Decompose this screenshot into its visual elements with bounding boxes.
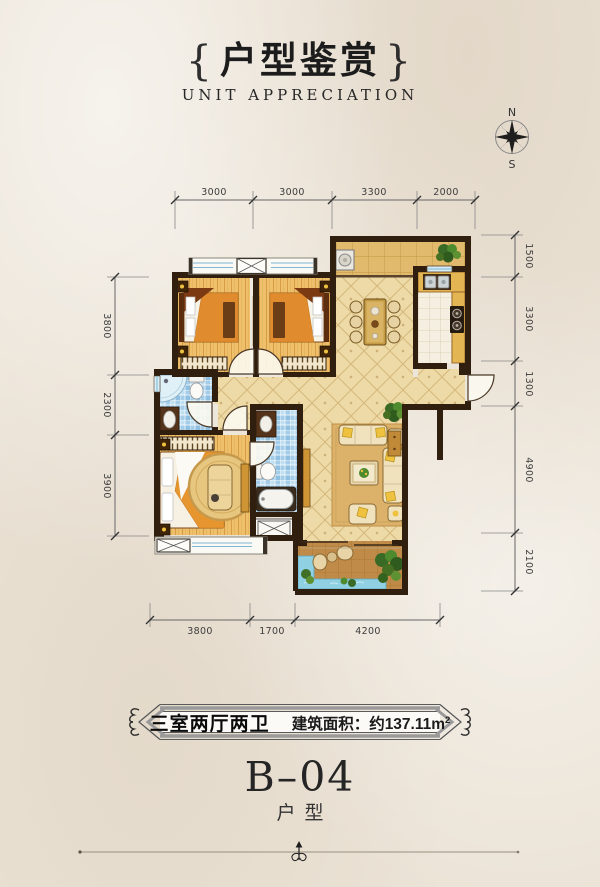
dim-label: 1500 [523, 243, 534, 268]
compass-north-label: N [508, 106, 516, 119]
dim-label: 3300 [523, 306, 534, 331]
dim-label: 2100 [523, 549, 534, 574]
dimension-left: 3800 2300 3900 [101, 273, 149, 540]
dim-label: 4200 [355, 626, 380, 637]
compass-south-label: S [509, 158, 516, 171]
wardrobe-icon [181, 357, 227, 370]
dim-label: 2300 [101, 392, 112, 417]
bay-window [155, 537, 267, 554]
dim-label: 4900 [523, 457, 534, 482]
toilet-icon [189, 375, 204, 399]
stove-icon [450, 306, 464, 333]
floor-plan [154, 236, 494, 595]
compass: N S [495, 106, 529, 171]
rooms-label: 三室两厅两卫 [150, 709, 270, 736]
kitchen-window [427, 266, 452, 272]
dimension-right: 1500 3300 1300 4900 2100 [481, 231, 534, 595]
dresser-icon [241, 464, 249, 512]
dim-label: 3800 [187, 626, 212, 637]
dimension-top: 3000 3000 3300 2000 [171, 187, 479, 229]
kitchen-sink-icon [423, 274, 451, 290]
bottom-divider [78, 841, 519, 861]
entry-floor [418, 369, 465, 404]
bed-icon [270, 288, 329, 342]
area-superscript: 2 [445, 715, 450, 726]
unit-code: B–04 [0, 753, 600, 801]
entry-door [468, 375, 494, 401]
dim-label: 3000 [279, 187, 304, 198]
dimension-bottom: 3800 1700 4200 [146, 603, 444, 637]
dim-label: 3300 [361, 187, 386, 198]
tv-cabinet-icon [303, 449, 310, 507]
armchair-icon [349, 504, 376, 524]
dining-table-icon [364, 299, 386, 345]
bathtub-icon [256, 487, 296, 511]
dim-label: 1300 [523, 371, 534, 396]
chaise-icon [208, 465, 232, 510]
sink-icon [256, 411, 276, 437]
dim-label: 3900 [101, 473, 112, 498]
unit-type-label: 户型 [0, 798, 600, 825]
divider-ornament-icon [292, 841, 306, 861]
bed-icon [179, 288, 238, 342]
bath-window [154, 376, 160, 392]
dining-area [350, 299, 400, 345]
wardrobe-icon [282, 357, 326, 370]
washing-machine-icon [336, 250, 354, 270]
area-label: 建筑面积：约137.11m2 [292, 712, 451, 734]
info-banner: 三室两厅两卫 建筑面积：约137.11m2 [128, 702, 472, 742]
toilet-icon [256, 463, 276, 480]
coffee-table-icon [350, 461, 378, 485]
dim-label: 2000 [433, 187, 458, 198]
sink-icon [160, 407, 179, 432]
dim-label: 3800 [101, 313, 112, 338]
bay-window [189, 258, 317, 274]
dim-label: 1700 [259, 626, 284, 637]
console-table-icon [388, 431, 401, 456]
dim-label: 3000 [201, 187, 226, 198]
